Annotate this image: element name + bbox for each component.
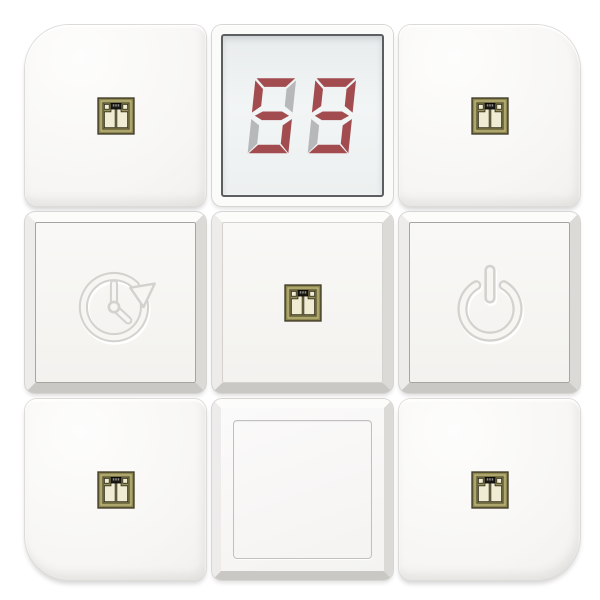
button-power[interactable] xyxy=(399,212,580,393)
button-bottom-right[interactable] xyxy=(399,399,580,580)
keypad-panel xyxy=(0,0,600,600)
button-timer[interactable] xyxy=(25,212,206,393)
seven-segment-digits xyxy=(243,74,363,158)
gold-module-icon xyxy=(471,97,509,135)
gold-module-icon xyxy=(97,97,135,135)
button-top-right[interactable] xyxy=(399,25,580,206)
gold-module-icon xyxy=(284,284,322,322)
gold-module-icon xyxy=(471,471,509,509)
button-middle-center[interactable] xyxy=(212,212,393,393)
power-icon xyxy=(437,250,543,356)
button-top-left[interactable] xyxy=(25,25,206,206)
timer-clock-icon xyxy=(63,250,169,356)
power-key-plate xyxy=(409,222,570,383)
gold-module-icon xyxy=(97,471,135,509)
center-key-plate xyxy=(222,222,383,383)
timer-key-plate xyxy=(35,222,196,383)
lcd-screen xyxy=(221,34,384,197)
button-blank[interactable] xyxy=(212,399,393,580)
blank-plate-outline xyxy=(233,420,372,559)
seven-segment-display xyxy=(212,25,393,206)
button-bottom-left[interactable] xyxy=(25,399,206,580)
